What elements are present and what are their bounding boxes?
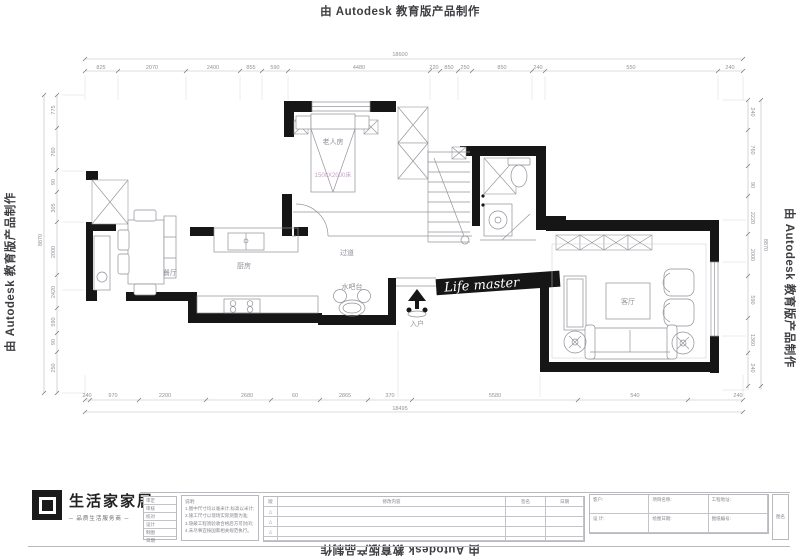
approval-row: 审核 [144, 505, 176, 513]
notes-title: 说明: [185, 498, 255, 505]
rev-header: 日期 [546, 497, 584, 507]
dim: 775 [51, 105, 57, 114]
dim-top: 18600 825 2070 2400 855 590 4480 220 850… [83, 52, 745, 73]
dim: 850 [444, 65, 453, 71]
dim: 590 [51, 317, 57, 326]
dim: 760 [749, 145, 755, 154]
washing-machine [484, 204, 512, 236]
dim: 90 [749, 182, 755, 188]
titleblock-top-line [140, 492, 790, 493]
dim: 370 [385, 393, 394, 399]
approval-row: 审定 [144, 497, 176, 505]
info-cell: 客户: [590, 495, 649, 514]
titleblock-side-cell: 图名 [772, 494, 789, 540]
dim: 240 [733, 393, 742, 399]
floorplan-canvas: Life master [0, 0, 800, 560]
kitchen-fixtures [197, 228, 318, 313]
dim-bottom: 240 970 2200 2680 60 2865 370 5580 540 2… [82, 393, 745, 414]
logo-square-icon [32, 490, 62, 520]
dim: 4480 [353, 65, 365, 71]
info-cell: 绘图日期: [649, 514, 708, 533]
info-cell: 工程地址: [709, 495, 768, 514]
titleblock-approval-table: 审定 审核 校对 设计 制图 日期 [143, 496, 177, 540]
dim: 2680 [241, 393, 253, 399]
dining-label: 餐厅 [163, 268, 177, 277]
hallway-label: 过道 [340, 248, 354, 257]
dim: 825 [96, 65, 105, 71]
water-bar-label: 水吧台 [342, 282, 363, 291]
info-cell: 项目名称: [649, 495, 708, 514]
company-logo: 生活家家居 ─ 品质生活服务商 ─ [32, 490, 154, 522]
dim-right-overall: 8870 [762, 239, 768, 251]
coat-stand-icon [407, 289, 428, 317]
dim: 305 [51, 203, 57, 212]
dim: 220 [429, 65, 438, 71]
dim: 2000 [51, 246, 57, 258]
dim: 2420 [51, 286, 57, 298]
dim: 970 [108, 393, 117, 399]
dim: 2220 [749, 212, 755, 224]
dim: 90 [51, 179, 57, 185]
company-slogan: ─ 品质生活服务商 ─ [69, 514, 154, 522]
rev-header: 签名 [506, 497, 546, 507]
dim: 2400 [207, 65, 219, 71]
dim: 2865 [339, 393, 351, 399]
dim-bottom-overall: 18495 [392, 406, 407, 412]
dim: 250 [460, 65, 469, 71]
entry-label: 入户 [410, 319, 424, 328]
dim-right: 240 760 90 2220 2000 590 1360 240 8870 [746, 98, 768, 390]
sheet-bottom-line [28, 546, 790, 547]
notes-line: 2.施工尺寸以现场实际测量为准; [185, 512, 255, 519]
bed-size-note: 1500X2000床 [315, 171, 352, 179]
cad-floorplan-page: { "watermark": { "autodesk": "由 Autodesk… [0, 0, 800, 560]
titleblock-revision-table: 版 修改内容 签名 日期 △ △ △ [263, 496, 585, 542]
titleblock-info-grid: 客户: 项目名称: 工程地址: 设 计: 绘图日期: 图纸编号: [589, 494, 769, 534]
kitchen-label: 厨房 [237, 261, 251, 270]
dim: 60 [292, 393, 298, 399]
windows [312, 101, 719, 336]
notes-line: 3.隐蔽工程须验收合格后方可封闭; [185, 520, 255, 527]
dim: 240 [749, 363, 755, 372]
living-label: 客厅 [621, 297, 635, 306]
info-cell: 设 计: [590, 514, 649, 533]
approval-row: 制图 [144, 529, 176, 537]
company-name: 生活家家居 [69, 490, 154, 511]
rev-header: 修改内容 [278, 497, 506, 507]
dim: 240 [725, 65, 734, 71]
rev-header: 版 [264, 497, 278, 507]
rev-mark: △ [264, 507, 278, 517]
dim: 1360 [749, 334, 755, 346]
dim: 240 [749, 107, 755, 116]
dim: 855 [246, 65, 255, 71]
notes-line: 4.未尽事宜按国家相关规范执行。 [185, 527, 255, 534]
dim: 850 [497, 65, 506, 71]
rev-mark: △ [264, 527, 278, 537]
dim: 2070 [146, 65, 158, 71]
notes-line: 1.图中尺寸均以毫米计,标高以米计; [185, 505, 255, 512]
side-table-left [564, 331, 586, 353]
info-cell: 图纸编号: [709, 514, 768, 533]
dim: 760 [51, 147, 57, 156]
dim: 250 [51, 363, 57, 372]
dim: 240 [82, 393, 91, 399]
rev-mark: △ [264, 517, 278, 527]
dim: 5580 [489, 393, 501, 399]
dim: 90 [51, 339, 57, 345]
titleblock-notes: 说明: 1.图中尺寸均以毫米计,标高以米计; 2.施工尺寸以现场实际测量为准; … [181, 495, 259, 541]
dim-left-overall: 8870 [38, 234, 44, 246]
approval-row: 校对 [144, 513, 176, 521]
dim: 590 [270, 65, 279, 71]
bedroom-label: 老人房 [323, 137, 344, 146]
dim: 2000 [749, 249, 755, 261]
dim-top-overall: 18600 [392, 52, 407, 58]
dim: 240 [533, 65, 542, 71]
stairs [428, 150, 470, 244]
approval-row: 设计 [144, 521, 176, 529]
dim: 550 [626, 65, 635, 71]
entry-area [396, 278, 436, 317]
dim: 540 [630, 393, 639, 399]
approval-row: 日期 [144, 537, 176, 544]
dim: 590 [749, 295, 755, 304]
dim: 2200 [159, 393, 171, 399]
water-bar [334, 290, 371, 317]
dim-left: 775 760 90 305 2000 2420 590 90 250 8870 [38, 93, 59, 395]
